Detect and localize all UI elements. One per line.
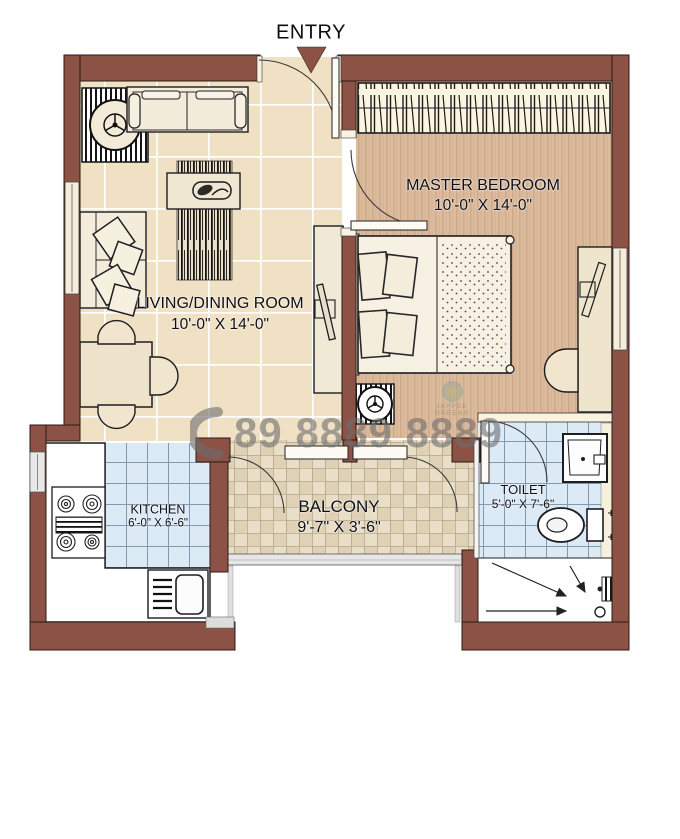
room-name: KITCHEN — [128, 504, 188, 518]
room-label-kitchen: KITCHEN 6'-0" X 6'-6" — [128, 504, 188, 531]
wc-toilet — [538, 508, 614, 542]
wash-basin — [563, 434, 607, 482]
room-label-toilet: TOILET 5'-0" X 7'-6" — [492, 482, 554, 512]
room-dimensions: 5'-0" X 7'-6" — [492, 497, 554, 512]
shower-area — [478, 558, 612, 624]
room-dimensions: 6'-0" X 6'-6" — [128, 517, 188, 531]
room-dimensions: 10'-0" X 14'-0" — [136, 314, 303, 335]
study-desk — [578, 247, 612, 412]
room-name: LIVING/DINING ROOM — [136, 293, 303, 314]
floor-drain — [595, 607, 605, 617]
dining-table — [80, 342, 152, 407]
living-room-window — [65, 182, 79, 294]
stove — [52, 487, 105, 558]
bedside-table — [356, 384, 394, 424]
two-seater-sofa — [127, 87, 248, 132]
room-label-balcony: BALCONY 9'-7" X 3'-6" — [297, 496, 380, 538]
double-bed — [353, 234, 514, 375]
kitchen-sink — [148, 570, 208, 618]
entry-label: ENTRY — [276, 22, 346, 45]
wardrobe — [358, 83, 610, 133]
bedroom-window — [613, 248, 627, 350]
room-label-master-bedroom: MASTER BEDROOM 10'-0" X 14'-0" — [406, 176, 560, 216]
floor-plan: ENTRY MASTER BEDROOM 10'-0" X 14'-0" LIV… — [0, 0, 680, 839]
room-name: MASTER BEDROOM — [406, 176, 560, 196]
balcony-railing — [228, 554, 478, 648]
room-dimensions: 10'-0" X 14'-0" — [406, 196, 560, 216]
room-name: TOILET — [492, 482, 554, 497]
coffee-table — [167, 173, 240, 209]
room-label-living-dining: LIVING/DINING ROOM 10'-0" X 14'-0" — [136, 293, 303, 335]
floor-plan-drawing — [0, 0, 680, 680]
room-dimensions: 9'-7" X 3'-6" — [297, 517, 380, 538]
tv-unit — [314, 226, 343, 393]
room-name: BALCONY — [297, 496, 380, 517]
